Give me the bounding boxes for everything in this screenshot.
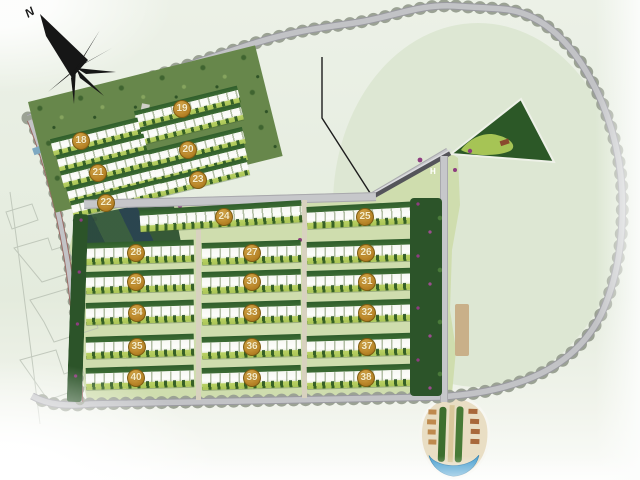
east-boundary-band [455,304,469,356]
building-badge-26[interactable]: 26 [357,244,375,262]
building-badge-30[interactable]: 30 [243,273,261,291]
east-landscape-strip [410,198,442,396]
building-badge-23[interactable]: 23 [189,171,207,189]
building-badge-22[interactable]: 22 [97,194,115,212]
building-badge-40[interactable]: 40 [127,369,145,387]
building-badge-25[interactable]: 25 [356,208,374,226]
building-badge-37[interactable]: 37 [358,338,376,356]
building-badge-33[interactable]: 33 [243,304,261,322]
building-badge-38[interactable]: 38 [357,369,375,387]
north-compass-icon: N [14,2,126,110]
amenity-court [419,396,490,479]
column-lane [196,206,201,400]
building-badge-27[interactable]: 27 [243,244,261,262]
building-badge-32[interactable]: 32 [358,304,376,322]
site-master-plan: H 18 [0,0,640,480]
compass-north-label: N [22,4,37,21]
building-badge-31[interactable]: 31 [358,273,376,291]
building-badge-18[interactable]: 18 [72,132,90,150]
building-badge-19[interactable]: 19 [173,100,191,118]
building-badge-34[interactable]: 34 [128,304,146,322]
building-badge-36[interactable]: 36 [243,338,261,356]
building-badge-20[interactable]: 20 [179,141,197,159]
building-badge-28[interactable]: 28 [127,244,145,262]
building-badge-24[interactable]: 24 [215,208,233,226]
entrance-marker-label: H [430,167,436,176]
building-badge-35[interactable]: 35 [128,338,146,356]
building-badge-21[interactable]: 21 [89,164,107,182]
building-badge-39[interactable]: 39 [243,369,261,387]
building-badge-29[interactable]: 29 [127,273,145,291]
